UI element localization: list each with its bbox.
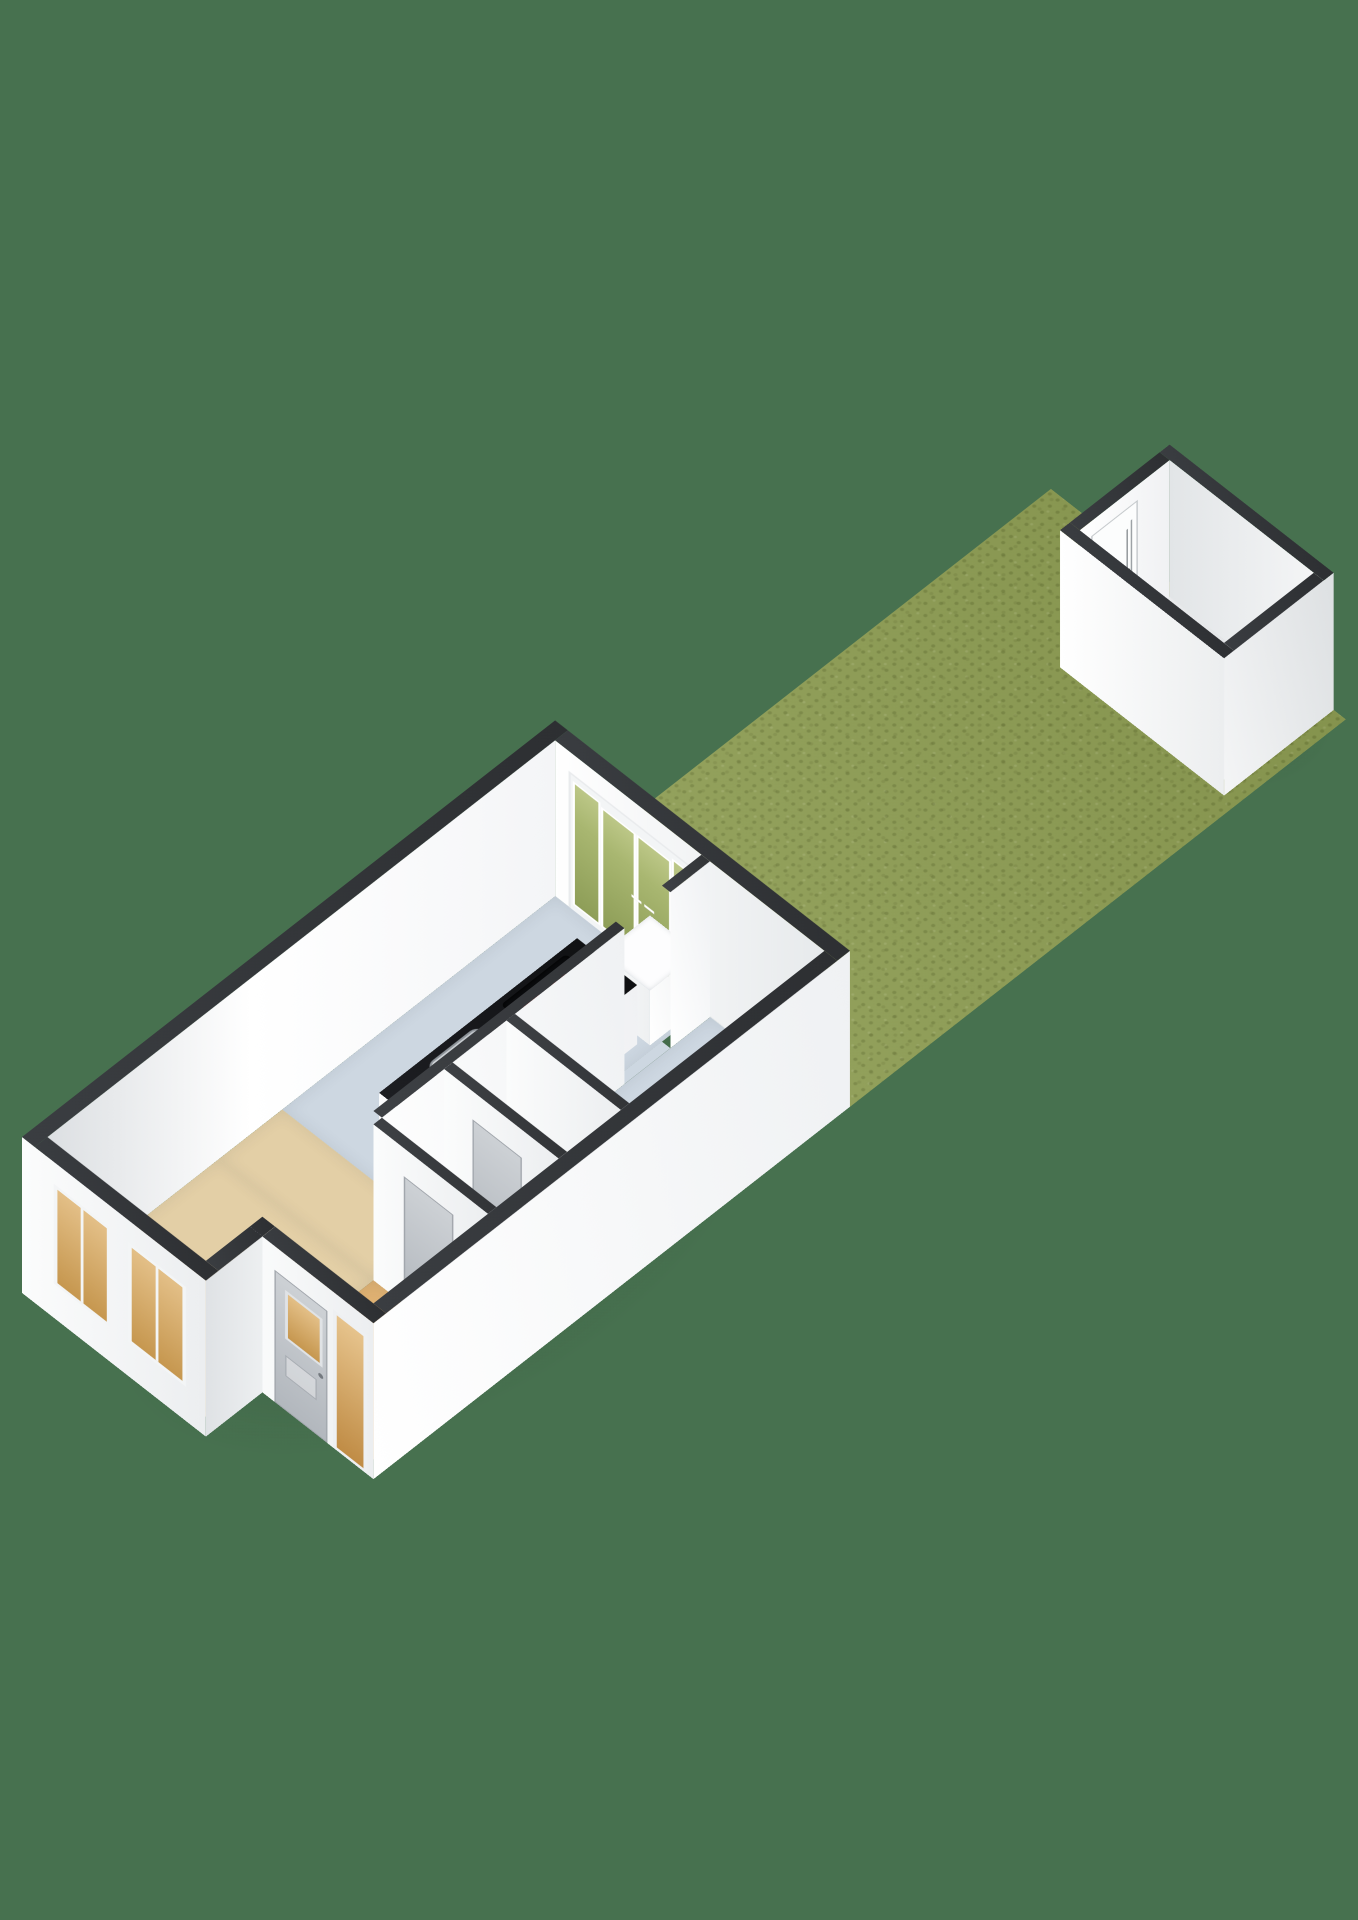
door-pane — [575, 784, 598, 922]
window-mullion — [81, 1208, 84, 1304]
window-mullion — [156, 1266, 159, 1362]
door-handle — [318, 1372, 323, 1380]
window-1 — [54, 1184, 111, 1328]
front-door-window — [285, 1290, 322, 1368]
window-2 — [128, 1242, 186, 1387]
interior-wall-face — [670, 861, 710, 1048]
door-kickplate — [285, 1355, 317, 1401]
background: { "scene": { "type": "3d-floorplan-rende… — [0, 0, 1358, 1920]
sidelight — [333, 1309, 367, 1474]
